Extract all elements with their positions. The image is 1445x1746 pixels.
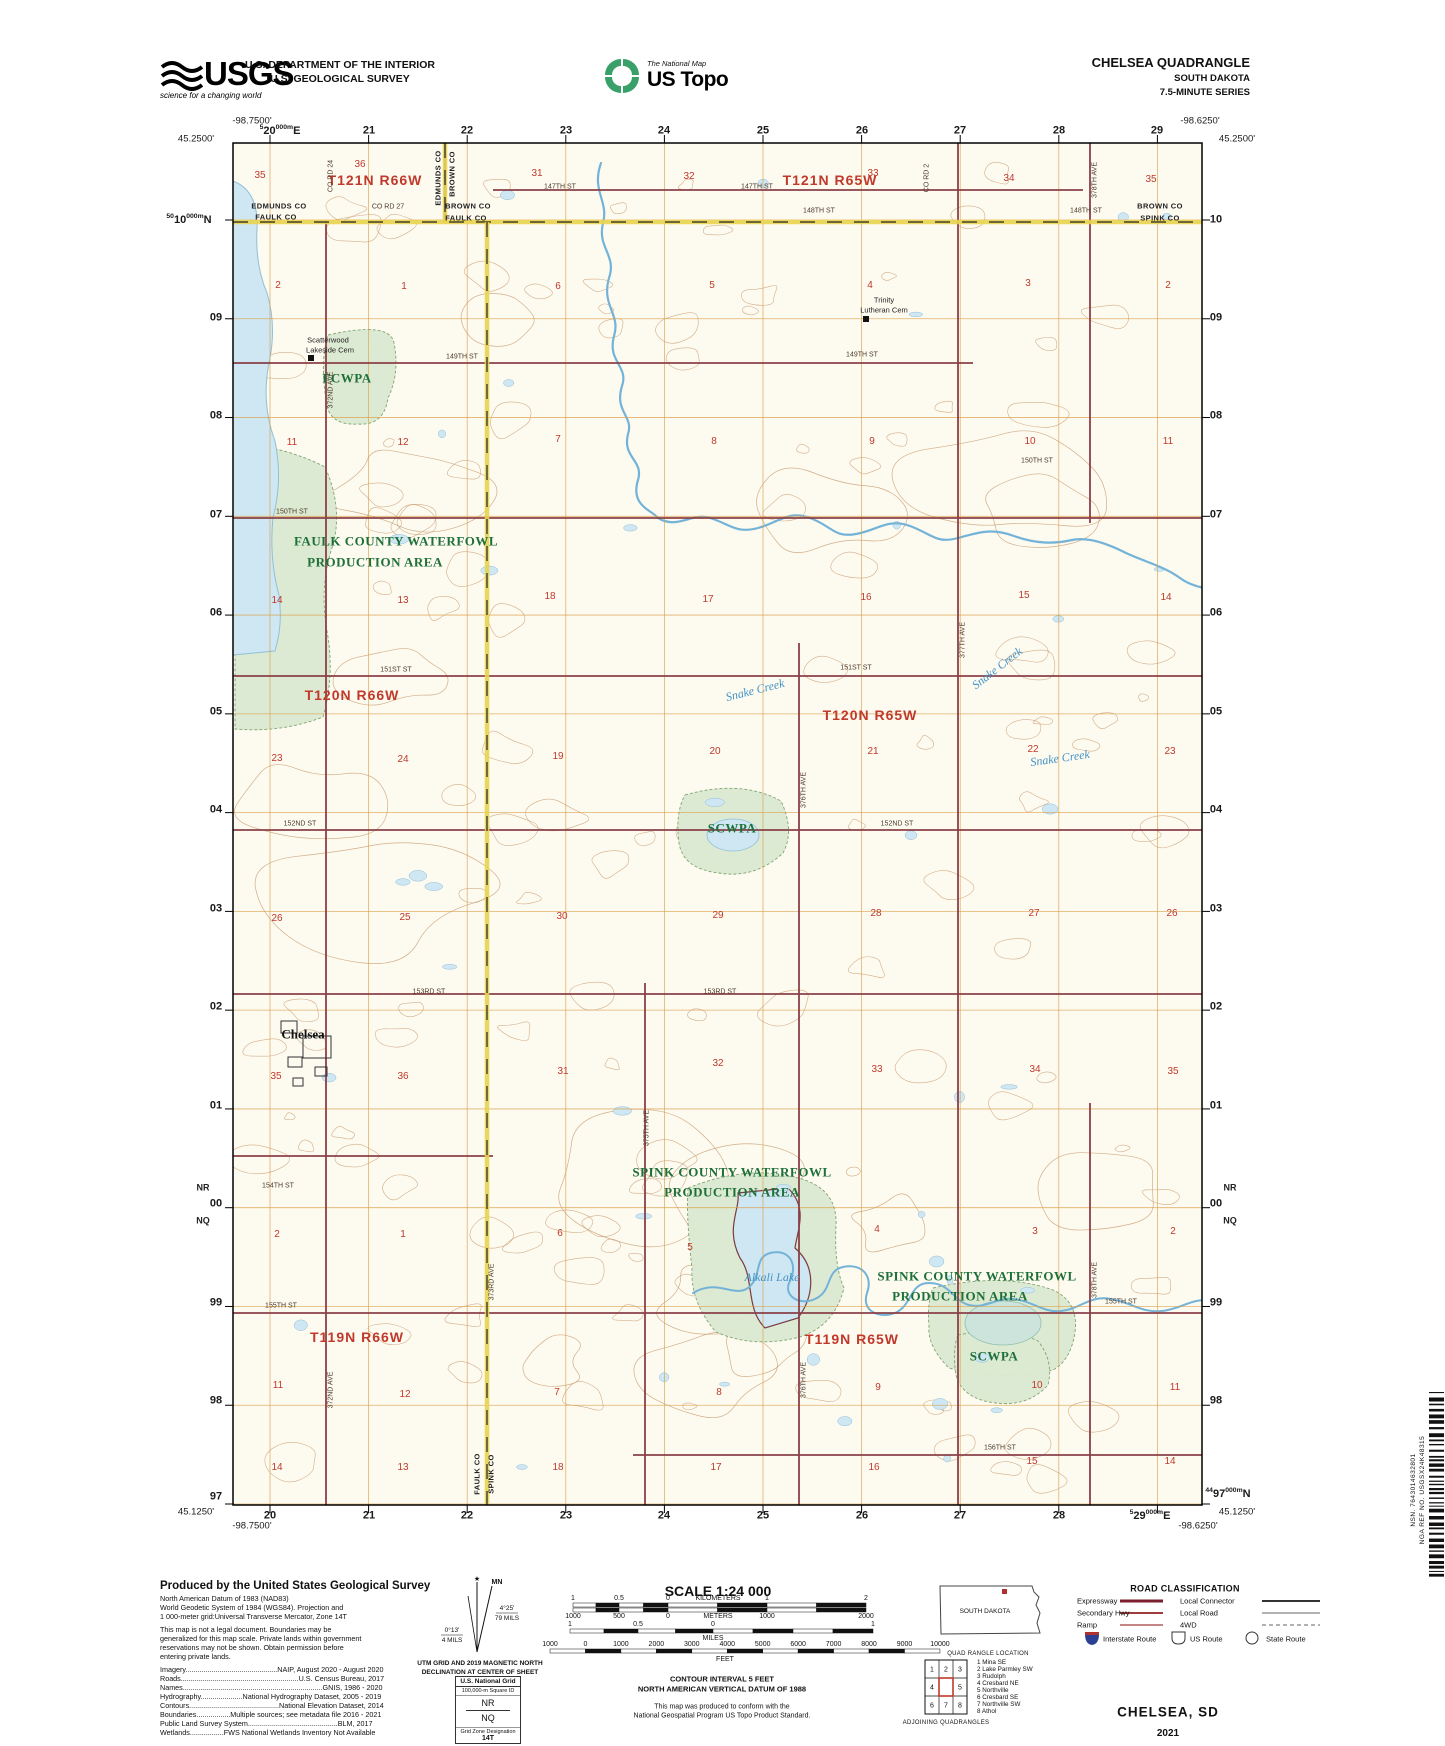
map-label: T121N R65W [783, 173, 878, 187]
map-label: 06 [1210, 608, 1222, 619]
map-label: 03 [1210, 904, 1222, 915]
legend-local-road: Local Road [1180, 1609, 1218, 1617]
map-label: 98 [210, 1396, 222, 1407]
map-label: 08 [1210, 411, 1222, 422]
map-label: T120N R65W [823, 708, 918, 722]
map-label: 5 [709, 281, 715, 291]
map-label: 20 [709, 747, 720, 757]
legend-secondary-hwy: Secondary Hwy [1077, 1609, 1130, 1617]
map-label: 05 [1210, 707, 1222, 718]
map-label: 6 [557, 1229, 563, 1239]
standard-note-1: This map was produced to conform with th… [654, 1704, 789, 1711]
map-label: 14 [1164, 1457, 1175, 1467]
map-label: 377TH AVE [960, 622, 967, 658]
map-label: 06 [210, 608, 222, 619]
map-label: SPINK COUNTY WATERFOWL [632, 1166, 831, 1179]
legend-interstate-route: Interstate Route [1103, 1635, 1156, 1643]
map-label: 21 [363, 1511, 375, 1522]
map-label: SCWPA [970, 1350, 1018, 1363]
map-label: 378TH AVE [1092, 162, 1099, 198]
svg-text:3000: 3000 [684, 1641, 700, 1648]
ustopo-pinwheel-icon [605, 55, 641, 95]
svg-text:★: ★ [474, 1575, 480, 1583]
map-label: PRODUCTION AREA [307, 556, 443, 569]
map-label: EDMUNDS CO [251, 202, 306, 210]
barcode [1429, 1392, 1444, 1582]
map-label: 02 [210, 1002, 222, 1013]
svg-text:79 MILS: 79 MILS [495, 1615, 520, 1622]
svg-text:2: 2 [944, 1667, 948, 1674]
map-label: 01 [1210, 1101, 1222, 1112]
svg-text:2000: 2000 [858, 1613, 874, 1620]
svg-text:1000: 1000 [759, 1613, 775, 1620]
map-label: 155TH ST [1105, 1299, 1137, 1306]
map-label: 12 [399, 1390, 410, 1400]
map-label: Trinity [874, 296, 894, 304]
produced-by-title: Produced by the United States Geological… [160, 1580, 460, 1592]
svg-text:3: 3 [958, 1667, 962, 1674]
legal-notes: This map is not a legal document. Bounda… [160, 1625, 460, 1661]
map-label: 9 [875, 1383, 881, 1393]
state-name-label: SOUTH DAKOTA [960, 1609, 1011, 1616]
map-label: T121N R66W [328, 173, 423, 187]
svg-text:6: 6 [930, 1703, 934, 1710]
map-label: 147TH ST [741, 184, 773, 191]
map-label: 18 [552, 1463, 563, 1473]
map-label: 26 [856, 1511, 868, 1522]
map-label: 00 [1210, 1199, 1222, 1210]
map-label: 156TH ST [984, 1445, 1016, 1452]
usgs-topo-sheet: USGS science for a changing world U.S. D… [0, 0, 1445, 1746]
map-label: 372ND AVE [328, 1372, 335, 1409]
svg-text:METERS: METERS [703, 1613, 733, 1620]
map-label: 148TH ST [803, 208, 835, 215]
map-label: CO RD 24 [328, 160, 335, 192]
map-label: 149TH ST [846, 352, 878, 359]
svg-text:5: 5 [958, 1685, 962, 1692]
map-label: 11 [287, 438, 297, 448]
map-label: 30 [556, 912, 567, 922]
svg-text:7000: 7000 [826, 1641, 842, 1648]
map-label: 150TH ST [1021, 458, 1053, 465]
map-label: 17 [710, 1463, 721, 1473]
adjoining-quadrangles-caption: ADJOINING QUADRANGLES [903, 1720, 990, 1726]
map-label: 00 [210, 1199, 222, 1210]
map-label: 21 [867, 747, 878, 757]
svg-text:0: 0 [711, 1621, 715, 1628]
map-label: 5 [687, 1243, 693, 1253]
map-label: 153RD ST [413, 989, 446, 996]
map-label: 45.1250' [178, 1507, 214, 1517]
map-label: 31 [531, 169, 542, 179]
svg-text:5000: 5000 [755, 1641, 771, 1648]
map-label: 1 [401, 282, 407, 292]
sheet-year: 2021 [1157, 1729, 1179, 1739]
map-label: -98.7500' [232, 1521, 271, 1531]
svg-text:9000: 9000 [897, 1641, 913, 1648]
usng-zone: 14T [456, 1735, 520, 1742]
map-label: 18 [544, 592, 555, 602]
map-label: 16 [868, 1463, 879, 1473]
map-label: 529000mE [1130, 1510, 1171, 1522]
map-label: 36 [397, 1072, 408, 1082]
svg-text:8: 8 [958, 1703, 962, 1710]
map-label: 45.2500' [1219, 134, 1255, 144]
map-label: 15 [1018, 591, 1029, 601]
map-label: FAULK CO [255, 213, 297, 221]
svg-text:4000: 4000 [719, 1641, 735, 1648]
svg-text:0: 0 [666, 1613, 670, 1620]
map-label: BROWN CO [1137, 202, 1183, 210]
map-label: 11 [1170, 1383, 1180, 1393]
map-label: 05 [210, 707, 222, 718]
legend-ramp: Ramp [1077, 1621, 1097, 1629]
map-label: Scatterwood [307, 336, 349, 344]
usng-title: U.S. National Grid [456, 1677, 520, 1687]
scale-title: SCALE 1:24 000 [665, 1584, 772, 1598]
svg-text:1000: 1000 [565, 1613, 581, 1620]
svg-text:7: 7 [944, 1703, 948, 1710]
map-label: 10 [1210, 215, 1222, 226]
map-label: 154TH ST [262, 1183, 294, 1190]
ustopo-label: US Topo [647, 68, 728, 92]
declination-caption-1: UTM GRID AND 2019 MAGNETIC NORTH [417, 1661, 542, 1668]
svg-text:500: 500 [613, 1613, 625, 1620]
quad-state: SOUTH DAKOTA [1092, 73, 1250, 84]
svg-text:2: 2 [864, 1595, 868, 1602]
map-label: 09 [1210, 313, 1222, 324]
map-label: 25 [757, 126, 769, 137]
map-label: 02 [1210, 1002, 1222, 1013]
map-label: 6 [555, 282, 561, 292]
map-label: 45.2500' [178, 134, 214, 144]
map-label: 376TH AVE [801, 772, 808, 808]
map-label: 3 [1032, 1227, 1038, 1237]
map-label: 1 [400, 1230, 406, 1240]
map-label: SCWPA [708, 822, 756, 835]
map-label: 27 [954, 126, 966, 137]
legend-expressway: Expressway [1077, 1597, 1117, 1605]
map-label: 03 [210, 904, 222, 915]
map-label: 151ST ST [380, 667, 411, 674]
map-label: 25 [399, 913, 410, 923]
quadrangle-title: CHELSEA QUADRANGLE SOUTH DAKOTA 7.5-MINU… [1092, 55, 1250, 98]
map-label: PRODUCTION AREA [892, 1290, 1028, 1303]
map-label: 8 [711, 437, 717, 447]
map-label: 13 [397, 1463, 408, 1473]
map-label: 20 [264, 1511, 276, 1522]
map-label: 01 [210, 1101, 222, 1112]
map-label: 36 [354, 160, 365, 170]
map-label: 22 [461, 1511, 473, 1522]
svg-text:8000: 8000 [861, 1641, 877, 1648]
map-label: NR [197, 1184, 210, 1193]
map-label: 14 [1160, 593, 1171, 603]
map-label: CO RD 2 [924, 164, 931, 192]
map-label: 11 [273, 1381, 283, 1391]
map-label: 23 [1164, 747, 1175, 757]
map-label: 35 [254, 171, 265, 181]
svg-text:10000: 10000 [930, 1641, 950, 1648]
map-label: BROWN CO [445, 202, 491, 210]
map-label: NQ [1223, 1217, 1237, 1226]
road-classification-title: ROAD CLASSIFICATION [1130, 1585, 1240, 1594]
map-label: 23 [560, 126, 572, 137]
map-label: 25 [757, 1511, 769, 1522]
map-label: 09 [210, 313, 222, 324]
map-label: 7 [555, 435, 561, 445]
legend-us-route: US Route [1190, 1635, 1223, 1643]
map-label: 23 [271, 754, 282, 764]
map-label: 26 [271, 914, 282, 924]
map-label: 8 [716, 1388, 722, 1398]
map-label: 152ND ST [284, 821, 317, 828]
map-label: 99 [1210, 1298, 1222, 1309]
map-label: 376TH AVE [801, 1362, 808, 1398]
map-label: 97 [210, 1492, 222, 1503]
map-label: 33 [871, 1065, 882, 1075]
map-label: 04 [1210, 805, 1222, 816]
map-label: PRODUCTION AREA [664, 1186, 800, 1199]
map-label: 28 [1053, 126, 1065, 137]
usng-sub2: Grid Zone Designation [456, 1727, 520, 1735]
map-label: Alkali Lake [745, 1271, 800, 1283]
map-label: 29 [712, 911, 723, 921]
usng-id-nr: NR [456, 1696, 520, 1710]
map-label: NR [1224, 1184, 1237, 1193]
map-label: 35 [1167, 1067, 1178, 1077]
department-heading: U.S. DEPARTMENT OF THE INTERIOR U.S. GEO… [240, 58, 440, 86]
svg-text:1: 1 [571, 1595, 575, 1602]
map-label: 21 [363, 126, 375, 137]
map-label: 28 [1053, 1511, 1065, 1522]
map-label: 373RD AVE [489, 1264, 496, 1301]
map-label: 10 [1031, 1381, 1042, 1391]
map-label: 155TH ST [265, 1303, 297, 1310]
map-label: 26 [856, 126, 868, 137]
map-label: 98 [1210, 1396, 1222, 1407]
adjoining-quad-names: 1 Mina SE2 Lake Parmley SW3 Rudolph4 Cre… [977, 1659, 1033, 1715]
map-label: 16 [860, 593, 871, 603]
map-label: 7 [554, 1388, 560, 1398]
contour-interval-note: CONTOUR INTERVAL 5 FEET [670, 1675, 774, 1683]
map-label: 33 [867, 169, 878, 179]
usgs-wave-icon [160, 57, 204, 91]
dept-line1: U.S. DEPARTMENT OF THE INTERIOR [240, 58, 440, 72]
map-label: 150TH ST [276, 509, 308, 516]
map-label: 34 [1029, 1065, 1040, 1075]
map-label: 2 [1165, 281, 1171, 291]
map-label: 22 [461, 126, 473, 137]
map-label: Chelsea [281, 1028, 324, 1041]
map-label: 378TH AVE [1092, 1262, 1099, 1298]
svg-text:0: 0 [583, 1641, 587, 1648]
map-label: 14 [271, 1463, 282, 1473]
map-label: EDMUNDS CO [434, 150, 442, 205]
usgs-tagline: science for a changing world [160, 91, 330, 100]
ustopo-logo: The National Map US Topo [605, 55, 728, 95]
map-label: 2 [275, 281, 281, 291]
svg-text:FEET: FEET [716, 1656, 735, 1663]
map-label: 2 [1170, 1227, 1176, 1237]
map-label: 08 [210, 411, 222, 422]
map-label: 27 [954, 1511, 966, 1522]
map-label: 5010000mN [166, 214, 211, 226]
svg-text:6000: 6000 [790, 1641, 806, 1648]
datum-notes: North American Datum of 1983 (NAD83)Worl… [160, 1594, 460, 1621]
quad-series: 7.5-MINUTE SERIES [1092, 87, 1250, 98]
map-label: 29 [1151, 126, 1163, 137]
svg-text:1000: 1000 [613, 1641, 629, 1648]
nga-ref-number: NGA REF NO. USGSX24K48315 [1420, 1436, 1427, 1545]
map-label: 14 [271, 596, 282, 606]
map-label: 12 [397, 438, 408, 448]
map-label: T119N R66W [310, 1330, 404, 1344]
map-label: 13 [397, 596, 408, 606]
svg-text:4°25': 4°25' [500, 1604, 515, 1612]
map-label: 2 [274, 1230, 280, 1240]
map-label: Lakeside Cem [306, 346, 354, 354]
map-label: 24 [397, 755, 408, 765]
map-label: 32 [712, 1059, 723, 1069]
map-label: 24 [658, 126, 670, 137]
map-label: 153RD ST [704, 989, 737, 996]
map-label: 27 [1028, 909, 1039, 919]
quad-name: CHELSEA QUADRANGLE [1092, 55, 1250, 70]
map-label: 17 [702, 595, 713, 605]
map-label: 45.1250' [1219, 1507, 1255, 1517]
map-label: 07 [210, 510, 222, 521]
map-label: 520000mE [260, 125, 301, 137]
map-label: SPINK CO [487, 1454, 495, 1493]
map-label: 148TH ST [1070, 208, 1102, 215]
map-label: FAULK CO [473, 1453, 481, 1495]
map-label: CO RD 27 [372, 204, 404, 211]
map-label: 10 [1024, 437, 1035, 447]
map-label: 372ND AVE [328, 372, 335, 409]
usng-id-nq: NQ [456, 1711, 520, 1725]
map-label: -98.6250' [1178, 1521, 1217, 1531]
map-label: 19 [552, 752, 563, 762]
svg-text:1: 1 [930, 1667, 934, 1674]
map-label: T120N R66W [305, 688, 400, 702]
map-label: 32 [683, 172, 694, 182]
svg-text:1: 1 [568, 1621, 572, 1628]
map-label: 35 [1145, 175, 1156, 185]
nsn-number: NSN. 7643014632801 [1411, 1453, 1418, 1526]
map-label: 35 [270, 1072, 281, 1082]
map-label: SPINK COUNTY WATERFOWL [877, 1270, 1076, 1283]
map-label: 375TH AVE [644, 1110, 651, 1146]
map-label: NQ [196, 1217, 210, 1226]
map-label: 07 [1210, 510, 1222, 521]
legend-local-connector: Local Connector [1180, 1597, 1235, 1605]
map-label: 9 [869, 437, 875, 447]
sheet-title: CHELSEA, SD [1117, 1705, 1219, 1719]
legend-4wd: 4WD [1180, 1621, 1197, 1629]
legend-state-route: State Route [1266, 1635, 1306, 1643]
national-map-label: The National Map [647, 59, 728, 68]
map-label: 31 [557, 1067, 568, 1077]
map-label: 26 [1166, 909, 1177, 919]
map-label: 28 [870, 909, 881, 919]
map-label: 3 [1025, 279, 1031, 289]
svg-text:1: 1 [871, 1621, 875, 1628]
map-label: BROWN CO [448, 151, 456, 197]
svg-text:0.5: 0.5 [614, 1595, 624, 1602]
map-label: Lutheran Cem [860, 306, 908, 314]
svg-text:4: 4 [930, 1685, 934, 1692]
svg-text:0.5: 0.5 [633, 1621, 643, 1628]
map-label: 149TH ST [446, 354, 478, 361]
map-label: 147TH ST [544, 184, 576, 191]
map-label: FAULK CO [445, 214, 487, 222]
standard-note-2: National Geospatial Program US Topo Prod… [634, 1713, 811, 1720]
map-label: 23 [560, 1511, 572, 1522]
map-label: 24 [658, 1511, 670, 1522]
quadrangle-location-caption: QUAD RANGLE LOCATION [947, 1651, 1029, 1657]
svg-text:1000: 1000 [542, 1641, 558, 1648]
map-label: FAULK COUNTY WATERFOWL [294, 535, 498, 548]
usng-sub1: 100,000-m Square ID [456, 1687, 520, 1696]
map-label: 4 [874, 1225, 880, 1235]
map-label: 152ND ST [881, 821, 914, 828]
map-label: T119N R65W [805, 1332, 899, 1346]
map-label: -98.6250' [1180, 116, 1219, 126]
map-label: 151ST ST [840, 665, 871, 672]
us-national-grid-box: U.S. National Grid 100,000-m Square ID N… [455, 1676, 521, 1744]
map-label: 99 [210, 1298, 222, 1309]
map-label: 4497000mN [1205, 1488, 1250, 1500]
map-label: 04 [210, 805, 222, 816]
production-notes: Produced by the United States Geological… [160, 1580, 460, 1737]
map-label: 15 [1026, 1457, 1037, 1467]
vertical-datum-note: NORTH AMERICAN VERTICAL DATUM OF 1988 [638, 1685, 806, 1693]
map-label: SPINK CO [1140, 214, 1179, 222]
svg-text:MN: MN [492, 1579, 503, 1586]
map-label: 11 [1163, 437, 1173, 447]
map-label: 4 [867, 281, 873, 291]
svg-text:2000: 2000 [649, 1641, 665, 1648]
dept-line2: U.S. GEOLOGICAL SURVEY [240, 72, 440, 86]
map-label: 34 [1003, 174, 1014, 184]
data-credits: Imagery.................................… [160, 1665, 460, 1737]
